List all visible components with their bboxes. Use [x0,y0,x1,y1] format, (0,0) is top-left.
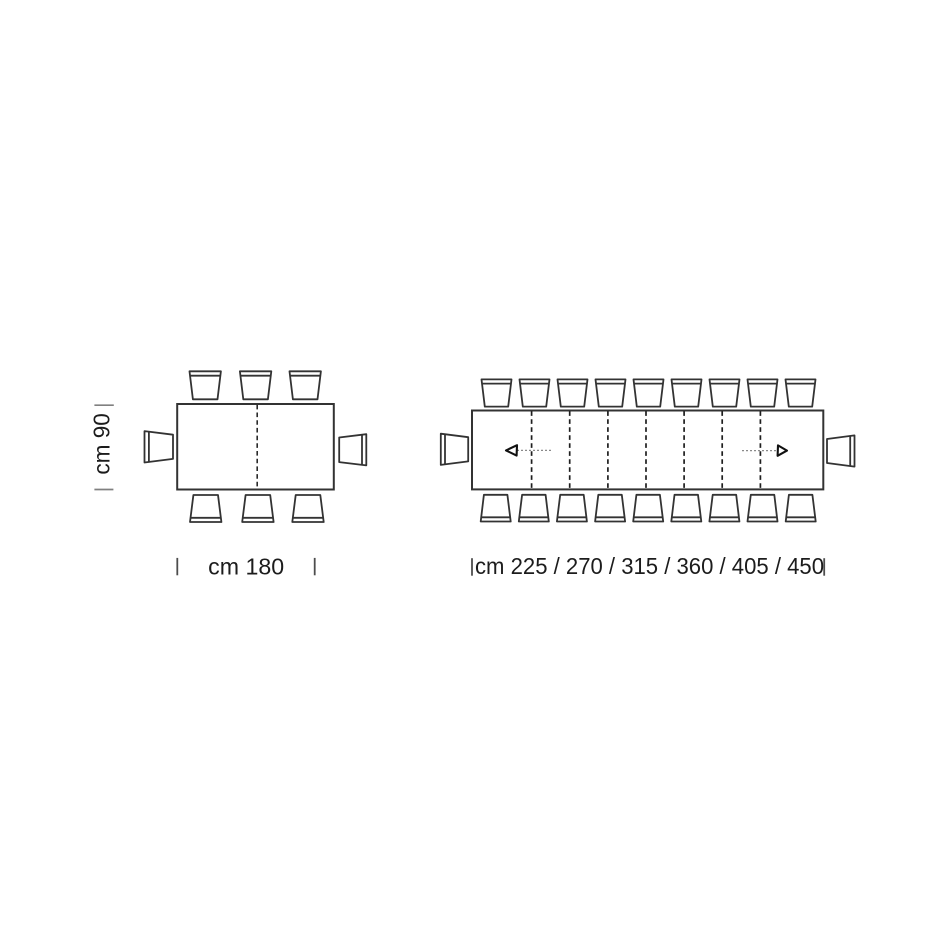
svg-text:cm 90: cm 90 [89,413,115,475]
svg-text:cm 180: cm 180 [208,554,284,580]
svg-text:cm 225 / 270 / 315 / 360 / 405: cm 225 / 270 / 315 / 360 / 405 / 450 [475,553,824,579]
